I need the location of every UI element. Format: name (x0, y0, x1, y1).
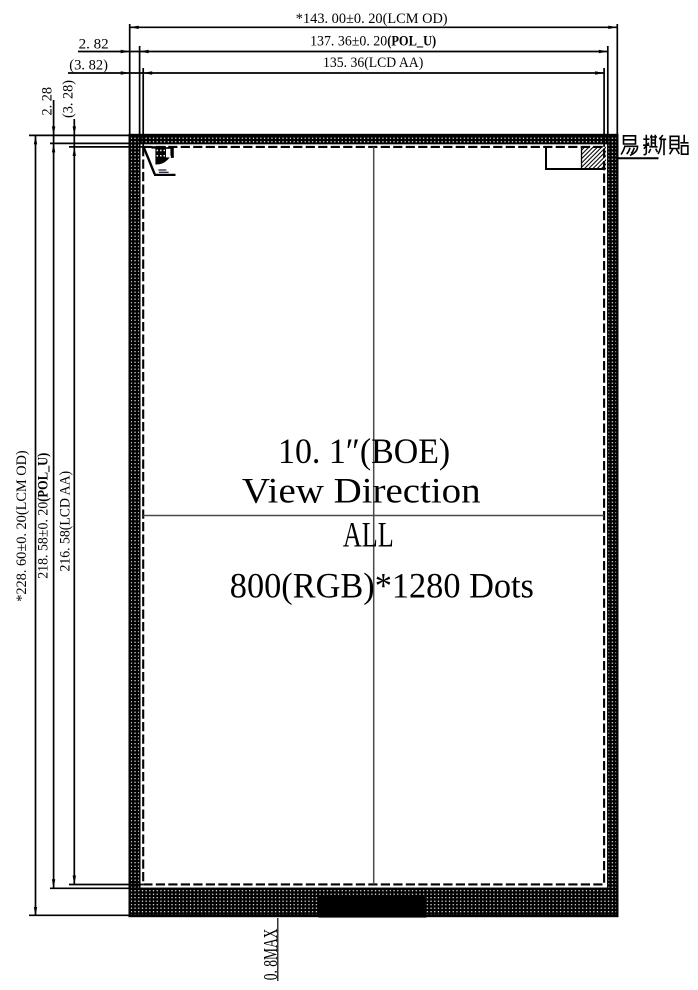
svg-text:*143. 00±0. 20(LCM OD): *143. 00±0. 20(LCM OD) (296, 10, 448, 27)
svg-text:800(RGB)*1280 Dots: 800(RGB)*1280 Dots (230, 566, 534, 606)
svg-text:2. 82: 2. 82 (79, 36, 109, 53)
svg-text:0. 8MAX: 0. 8MAX (260, 928, 282, 980)
svg-text:(3. 82): (3. 82) (69, 56, 108, 73)
svg-text:216. 58(LCD AA): 216. 58(LCD AA) (57, 471, 74, 572)
svg-text:View Direction: View Direction (242, 471, 481, 511)
svg-text:(POL_U): (POL_U) (34, 453, 51, 502)
svg-text:135. 36(LCD AA): 135. 36(LCD AA) (323, 54, 423, 71)
svg-text:ALL: ALL (343, 515, 394, 555)
svg-text:218. 58±0. 20: 218. 58±0. 20 (34, 501, 51, 578)
svg-text:(3. 28): (3. 28) (59, 80, 76, 118)
svg-text:(POL_U): (POL_U) (387, 33, 436, 50)
svg-text:10. 1″(BOE): 10. 1″(BOE) (278, 431, 450, 471)
svg-text:137. 36±0. 20: 137. 36±0. 20 (310, 33, 387, 50)
svg-text:2. 28: 2. 28 (38, 87, 55, 116)
svg-text:*228. 60±0. 20(LCM OD): *228. 60±0. 20(LCM OD) (13, 450, 30, 602)
